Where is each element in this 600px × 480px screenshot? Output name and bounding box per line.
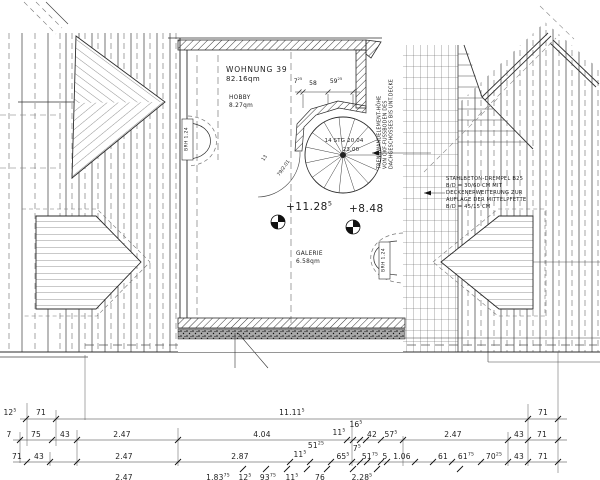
- left-gable-roof: [72, 36, 165, 178]
- dim-label: 43: [34, 452, 44, 461]
- dim-label: 43: [60, 430, 70, 439]
- dim-label: 1.8375: [206, 473, 230, 480]
- dim-label: 9375: [260, 473, 276, 480]
- corner-roof-marks: [24, 2, 62, 34]
- dim-label: 71: [12, 452, 22, 461]
- stair-dim: 58: [309, 80, 317, 87]
- stair-dim: 5925: [330, 78, 342, 85]
- note-drempel: STAHLBETON-DREMPEL B25 B/D = 30/60 CM MI…: [446, 176, 526, 211]
- note-trennwand: TRENNWANDELEMENT-HÖHE VON OKF-FUSSBODEN …: [377, 79, 394, 169]
- brh-left: BRH 1.24: [185, 127, 190, 151]
- dim-label: 165: [349, 420, 362, 429]
- dim-label: 71: [538, 408, 548, 417]
- level-marker-icon: [271, 215, 285, 229]
- dim-label: 7: [7, 430, 12, 439]
- dim-label: 2.47: [115, 452, 133, 461]
- dim-label: 11.115: [279, 408, 305, 417]
- upper-roof-face: [458, 54, 533, 142]
- dim-label: 2.87: [231, 452, 249, 461]
- dim-label: 2.47: [444, 430, 462, 439]
- dim-label: 5125: [308, 441, 324, 450]
- dim-label: 76: [315, 473, 325, 480]
- apartment-area: 82.16qm: [226, 75, 260, 83]
- dim-label: 6175: [458, 452, 474, 461]
- galerie-area: 6.58qm: [296, 259, 320, 265]
- dim-label: 125: [3, 408, 16, 417]
- dim-label: 115: [293, 450, 306, 459]
- dim-label: 125: [238, 473, 251, 480]
- galerie-label: GALERIE: [296, 251, 323, 257]
- dim-label: 5175: [362, 452, 378, 461]
- brh-right: BRH 1.24: [382, 248, 387, 272]
- dim-label: 7025: [486, 452, 502, 461]
- hobby-label: HOBBY: [229, 95, 251, 101]
- dim-label: 1.06: [393, 452, 411, 461]
- dim-label: 4.04: [253, 430, 271, 439]
- dim-label: 575: [384, 430, 397, 439]
- apartment-title: WOHNUNG 39: [226, 65, 287, 74]
- dim-label: 43: [514, 430, 524, 439]
- floor-plan: { "plan": { "apartment": {"name": "WOHNU…: [0, 0, 600, 480]
- hobby-area: 8.27qm: [229, 103, 253, 109]
- stair-dim: 725: [294, 78, 303, 85]
- roof-edge: [464, 45, 533, 149]
- dim-label: 71: [538, 452, 548, 461]
- stair-label2: 23,00: [343, 147, 359, 153]
- dim-label: 71: [537, 430, 547, 439]
- level-lower: +8.48: [349, 203, 384, 215]
- dim-label: 42: [367, 430, 377, 439]
- level-upper: +11.285: [286, 201, 333, 213]
- dim-label: 2.285: [352, 473, 373, 480]
- dim-label: 115: [285, 473, 298, 480]
- apartment-room: [178, 36, 403, 352]
- dim-label: 115: [332, 428, 345, 437]
- level-marker-icon: [346, 220, 360, 234]
- dim-label: 655: [336, 452, 349, 461]
- eave-dashed: [0, 115, 58, 168]
- dim-label: 2.47: [115, 473, 133, 480]
- dim-label: 75: [31, 430, 41, 439]
- dim-label: 43: [514, 452, 524, 461]
- stair-label: 14 STG 20,04: [324, 138, 363, 144]
- dim-label: 61: [438, 452, 448, 461]
- dim-label: 5: [383, 452, 388, 461]
- dim-label: 75: [353, 444, 361, 453]
- dim-label: 2.47: [113, 430, 131, 439]
- dim-label: 71: [36, 408, 46, 417]
